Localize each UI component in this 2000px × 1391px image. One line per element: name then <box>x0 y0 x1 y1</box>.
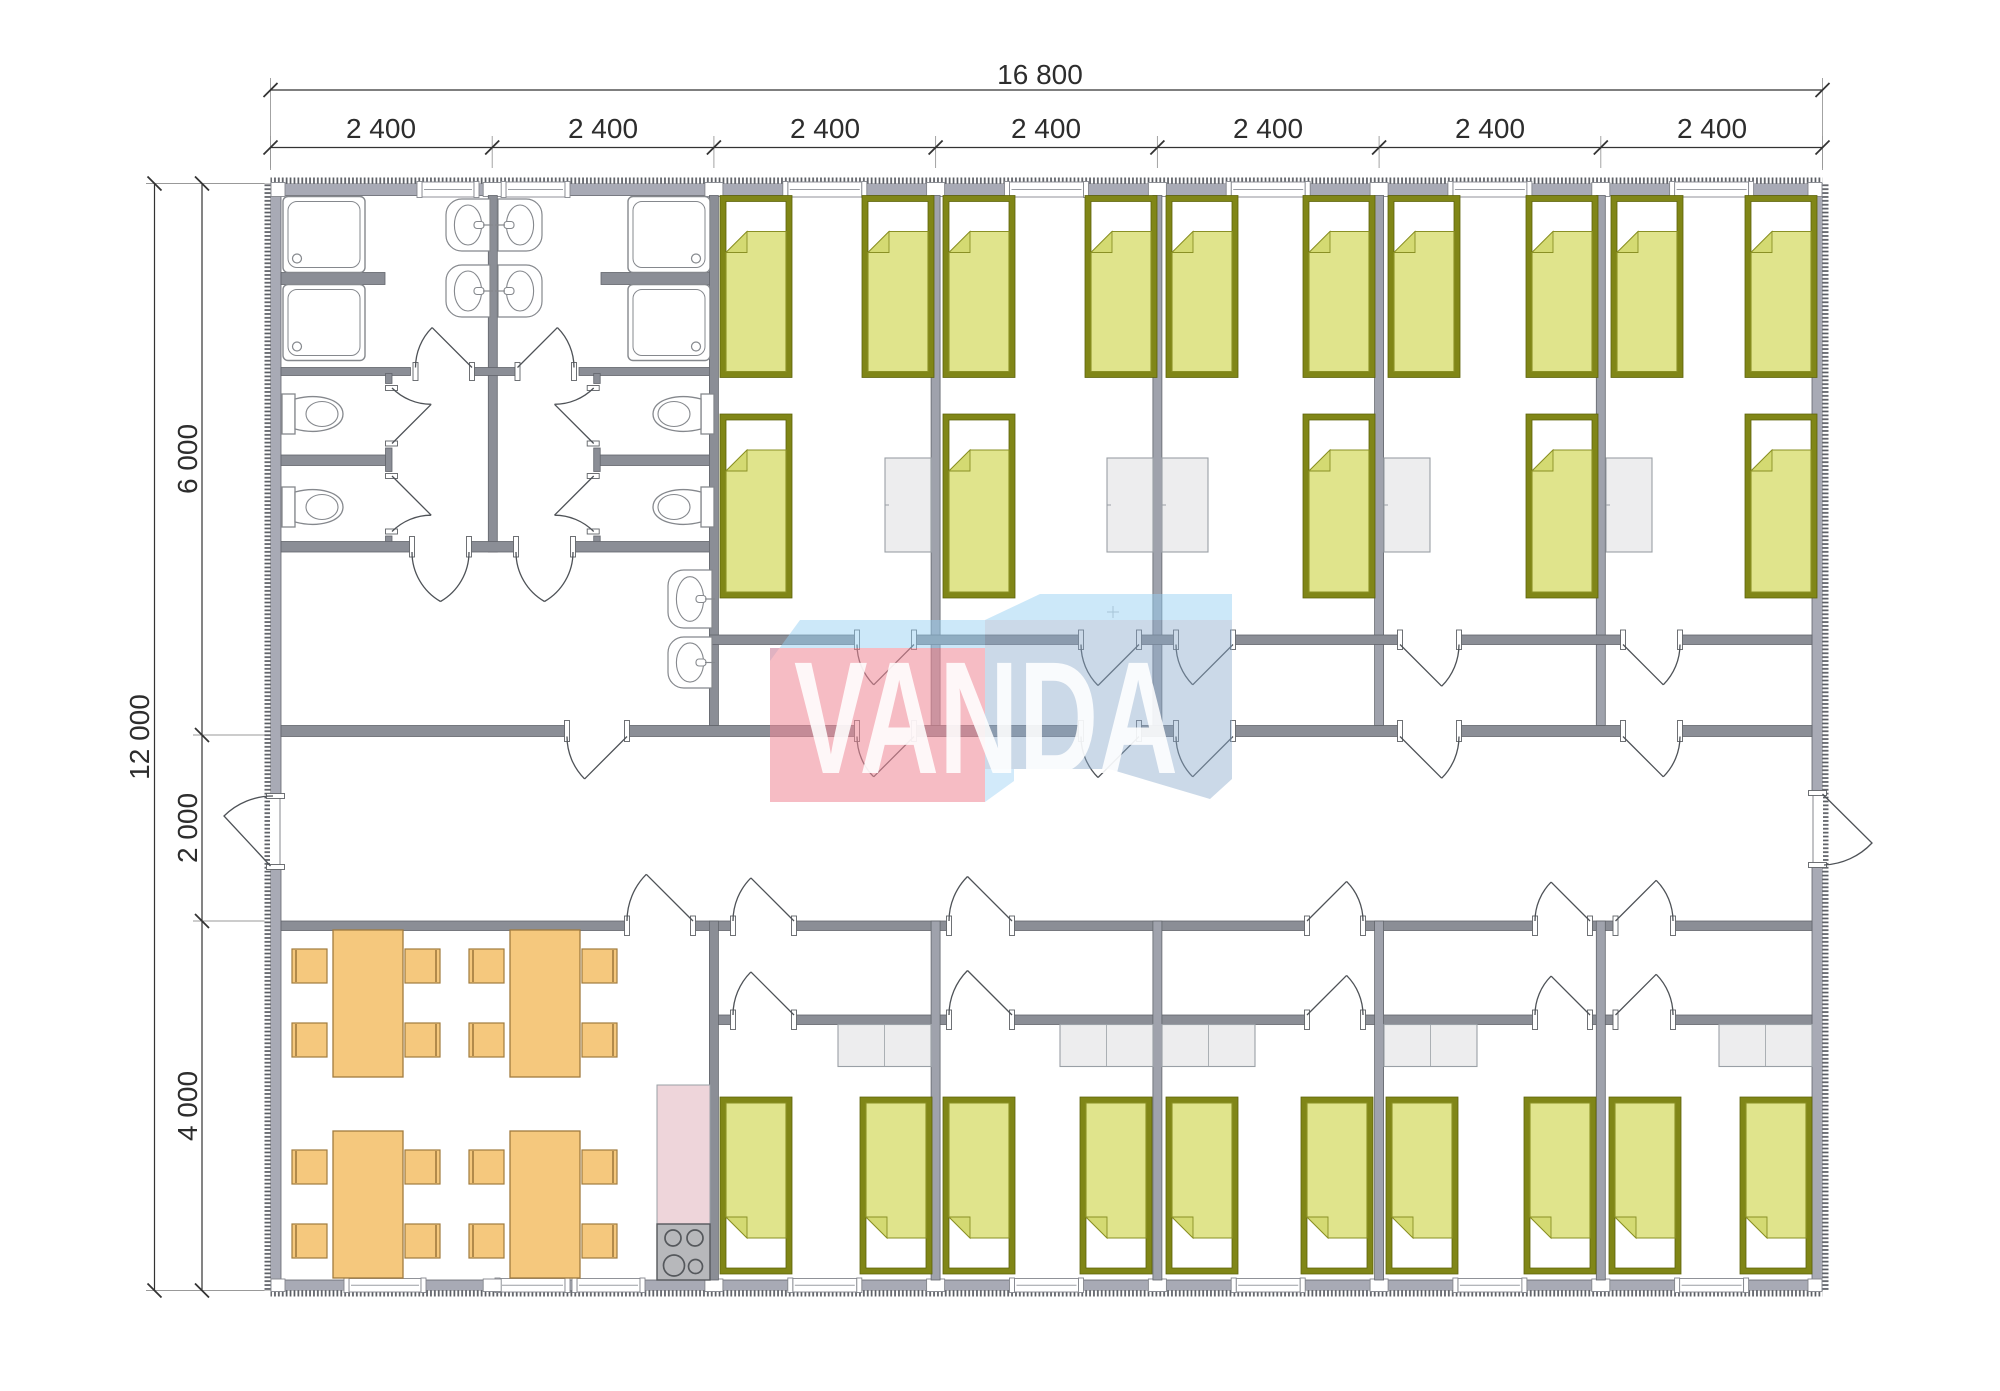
svg-text:VANDA: VANDA <box>794 628 1178 807</box>
svg-text:2 400: 2 400 <box>1677 113 1747 144</box>
svg-text:2 400: 2 400 <box>1455 113 1525 144</box>
svg-text:12 000: 12 000 <box>124 694 155 780</box>
svg-text:4 000: 4 000 <box>172 1071 203 1141</box>
svg-text:2 400: 2 400 <box>346 113 416 144</box>
svg-text:2 400: 2 400 <box>790 113 860 144</box>
svg-text:2 400: 2 400 <box>568 113 638 144</box>
svg-text:2 000: 2 000 <box>172 793 203 863</box>
svg-text:2 400: 2 400 <box>1011 113 1081 144</box>
svg-text:2 400: 2 400 <box>1233 113 1303 144</box>
svg-text:6 000: 6 000 <box>172 424 203 494</box>
svg-text:16 800: 16 800 <box>997 59 1083 90</box>
